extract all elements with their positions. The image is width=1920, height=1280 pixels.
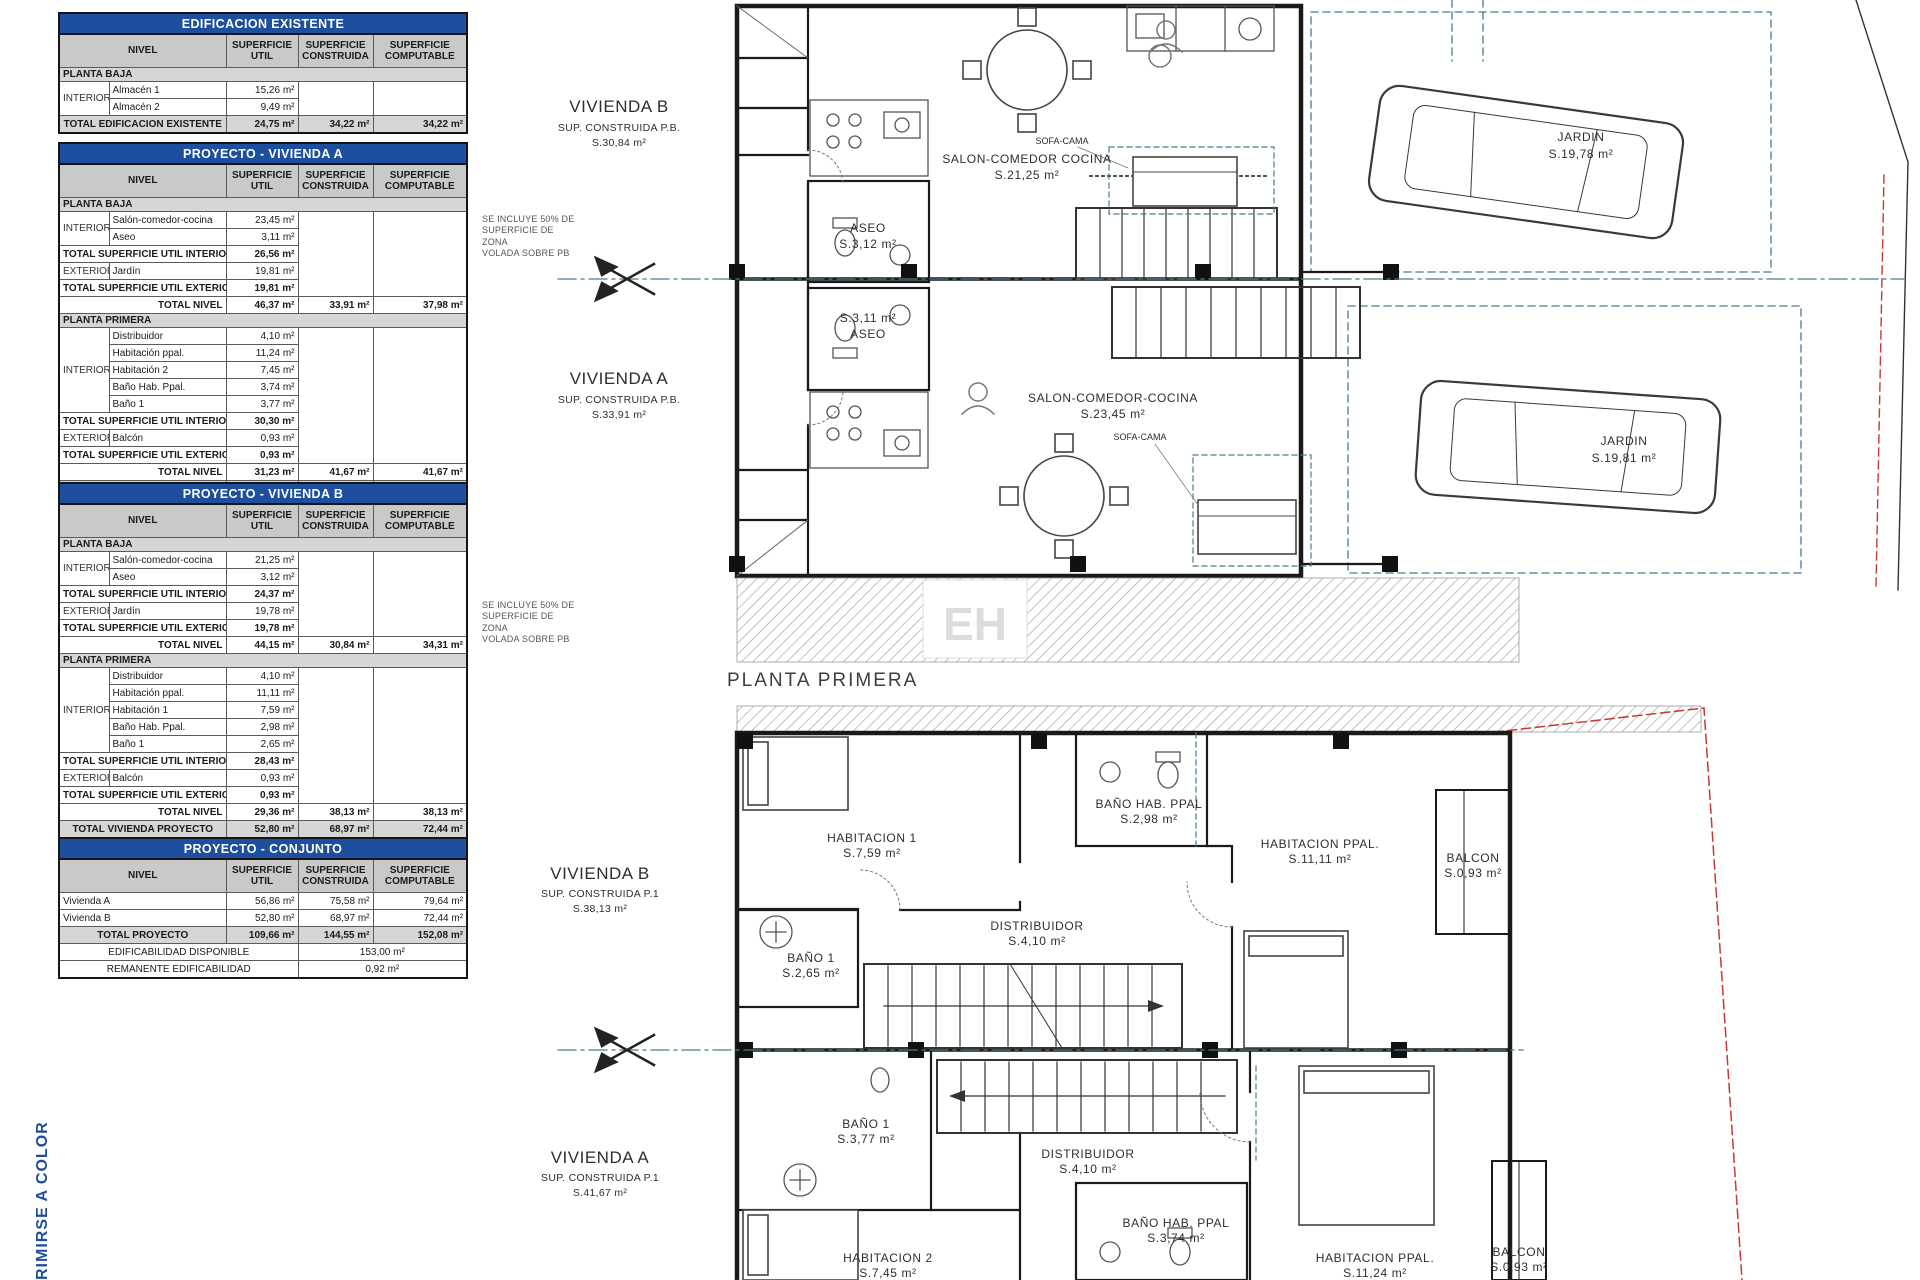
room-area-distribuidor-b: S.4,10 m² (1008, 934, 1065, 948)
jardin-a-area: S.19,81 m² (1592, 451, 1657, 465)
room-label-distribuidor-b: DISTRIBUIDOR (990, 919, 1083, 933)
table-row: TOTAL EDIFICACION EXISTENTE 24,75 m² 34,… (59, 116, 467, 134)
room-area-balcon-a: S.0,93 m² (1490, 1260, 1547, 1274)
room-area-habppal-b: S.11,11 m² (1289, 852, 1352, 866)
table-proyecto-vivienda-b: PROYECTO - VIVIENDA B NIVEL SUPERFICIE U… (58, 482, 468, 839)
site-boundary-lines (1856, 0, 1908, 590)
table-row: INTERIOR Distribuidor 4,10 m² (59, 328, 467, 345)
room-area-distribuidor-a: S.4,10 m² (1059, 1162, 1116, 1176)
room-label-salon-a: SALON-COMEDOR-COCINA (1028, 391, 1198, 405)
vivienda-a-title: VIVIENDA A (570, 369, 669, 388)
room-label-habppal-b: HABITACION PPAL. (1261, 837, 1380, 851)
room-label-bano-hp-a: BAÑO HAB. PPAL (1123, 1216, 1230, 1230)
room-area-bano1-a: S.3,77 m² (837, 1132, 894, 1146)
table-row: EDIFICACION EXISTENTE (59, 13, 467, 34)
room-area-habitacion1: S.7,59 m² (843, 846, 900, 860)
bed-icon (1299, 1066, 1434, 1225)
table-row: Vivienda B 52,80 m² 68,97 m² 72,44 m² (59, 910, 467, 927)
ff-hatch-strip (737, 706, 1701, 732)
room-label-aseo-a: ASEO (850, 327, 886, 341)
room-label-salon-b: SALON-COMEDOR COCINA (942, 152, 1111, 166)
first-floor-plan (558, 706, 1742, 1280)
column-header: SUPERFICIE COMPUTABLE (373, 34, 467, 68)
sofa-bed-icon (1133, 157, 1237, 206)
room-label-distribuidor-a: DISTRIBUIDOR (1041, 1147, 1134, 1161)
sofa-bed-icon (1198, 500, 1296, 554)
table-row: TOTAL NIVEL 44,15 m² 30,84 m² 34,31 m² (59, 637, 467, 654)
table-row: TOTAL NIVEL 31,23 m² 41,67 m² 41,67 m² (59, 464, 467, 481)
table-row: NIVEL SUPERFICIE UTIL SUPERFICIE CONSTRU… (59, 164, 467, 198)
ground-floor-plan: EH (558, 0, 1908, 662)
sofa-cama-label: SOFA-CAMA (1113, 432, 1166, 442)
room-area-aseo-a: S.3,11 m² (840, 311, 897, 325)
room-area-habitacion2: S.7,45 m² (859, 1266, 916, 1280)
table-title: EDIFICACION EXISTENTE (59, 13, 467, 34)
room-label-habitacion1: HABITACION 1 (827, 831, 917, 845)
vivienda-a-area: S.41,67 m² (573, 1187, 628, 1199)
red-boundary-line (1876, 175, 1884, 588)
room-label-bano1-a: BAÑO 1 (842, 1117, 890, 1131)
table-row: INTERIOR Distribuidor 4,10 m² (59, 668, 467, 685)
watermark-text: EH (943, 598, 1007, 650)
room-area-aseo-b: S.3,12 m² (839, 237, 896, 251)
jardin-b-label: JARDIN (1558, 130, 1605, 144)
table-row: TOTAL NIVEL 29,36 m² 38,13 m² 38,13 m² (59, 804, 467, 821)
zona-volada-note: SE INCLUYE 50% DE SUPERFICIE DE ZONA VOL… (482, 214, 582, 259)
vivienda-a-subtitle: SUP. CONSTRUIDA P.1 (541, 1172, 659, 1184)
vivienda-a-area: S.33,91 m² (592, 409, 647, 421)
table-row: PROYECTO - CONJUNTO (59, 838, 467, 859)
table-title: PROYECTO - CONJUNTO (59, 838, 467, 859)
vivienda-b-subtitle: SUP. CONSTRUIDA P.B. (558, 122, 680, 134)
car-icon (1414, 380, 1721, 515)
vivienda-a-subtitle: SUP. CONSTRUIDA P.B. (558, 394, 680, 406)
room-label-balcon-b: BALCON (1447, 851, 1500, 865)
table-row: PLANTA PRIMERA (59, 314, 467, 328)
table-row: PLANTA BAJA (59, 198, 467, 212)
room-area-habppal-a: S.11,24 m² (1343, 1266, 1407, 1280)
column-header: SUPERFICIE UTIL (226, 34, 298, 68)
vivienda-b-title: VIVIENDA B (550, 864, 649, 883)
table-row: NIVEL SUPERFICIE UTIL SUPERFICIE CONSTRU… (59, 34, 467, 68)
table-row: NIVEL SUPERFICIE UTIL SUPERFICIE CONSTRU… (59, 859, 467, 893)
room-area-bano1-b: S.2,65 m² (782, 966, 839, 980)
room-label-aseo-b: ASEO (850, 221, 886, 235)
bed-icon (743, 1210, 858, 1280)
room-area-salon-b: S.21,25 m² (995, 168, 1060, 182)
table-row: TOTAL VIVIENDA PROYECTO 52,80 m² 68,97 m… (59, 821, 467, 839)
jardin-a-label: JARDIN (1601, 434, 1648, 448)
sofa-cama-label: SOFA-CAMA (1035, 136, 1088, 146)
room-area-salon-a: S.23,45 m² (1081, 407, 1146, 421)
table-title: PROYECTO - VIVIENDA B (59, 483, 467, 504)
ground-hatch-strip (737, 578, 1519, 662)
room-label-habitacion2: HABITACION 2 (843, 1251, 933, 1265)
bed-icon (743, 737, 848, 810)
vivienda-b-area: S.30,84 m² (592, 137, 647, 149)
column-header: SUPERFICIE CONSTRUIDA (298, 34, 373, 68)
zona-volada-note: SE INCLUYE 50% DE SUPERFICIE DE ZONA VOL… (482, 600, 582, 645)
table-proyecto-vivienda-a: PROYECTO - VIVIENDA A NIVEL SUPERFICIE U… (58, 142, 468, 499)
vivienda-b-title: VIVIENDA B (569, 97, 668, 116)
table-row: INTERIOR Almacén 1 15,26 m² (59, 82, 467, 99)
table-row: Vivienda A 56,86 m² 75,58 m² 79,64 m² (59, 893, 467, 910)
print-color-note: RIMIRSE A COLOR (34, 1120, 52, 1280)
room-label-bano-hp-b: BAÑO HAB. PPAL (1096, 797, 1203, 811)
room-label-habppal-a: HABITACION PPAL. (1316, 1251, 1435, 1265)
bed-icon (1244, 931, 1348, 1048)
table-row: TOTAL NIVEL 46,37 m² 33,91 m² 37,98 m² (59, 297, 467, 314)
table-row: EDIFICABILIDAD DISPONIBLE 153,00 m² (59, 944, 467, 961)
room-label-balcon-a: BALCON (1493, 1245, 1546, 1259)
watermark-logo: EH (923, 580, 1027, 658)
room-area-balcon-b: S.0,93 m² (1444, 866, 1501, 880)
table-row: PLANTA PRIMERA (59, 654, 467, 668)
table-row: TOTAL PROYECTO 109,66 m² 144,55 m² 152,0… (59, 927, 467, 944)
planta-primera-heading: PLANTA PRIMERA (727, 670, 918, 691)
car-icon (1366, 83, 1685, 240)
table-row: PROYECTO - VIVIENDA A (59, 143, 467, 164)
table-row: INTERIOR Salón-comedor-cocina 23,45 m² (59, 212, 467, 229)
vivienda-a-title: VIVIENDA A (551, 1148, 650, 1167)
vivienda-b-subtitle: SUP. CONSTRUIDA P.1 (541, 888, 659, 900)
room-label-bano1-b: BAÑO 1 (787, 951, 835, 965)
table-proyecto-conjunto: PROYECTO - CONJUNTO NIVEL SUPERFICIE UTI… (58, 837, 468, 979)
table-edificacion-existente: EDIFICACION EXISTENTE NIVEL SUPERFICIE U… (58, 12, 468, 134)
jardin-b-area: S.19,78 m² (1549, 147, 1614, 161)
room-area-bano-hp-a: S.3,74 m² (1147, 1231, 1204, 1245)
vivienda-b-area: S.38,13 m² (573, 903, 628, 915)
room-area-bano-hp-b: S.2,98 m² (1120, 812, 1177, 826)
table-row: PLANTA BAJA (59, 538, 467, 552)
table-row: INTERIOR Salón-comedor-cocina 21,25 m² (59, 552, 467, 569)
table-row: PLANTA BAJA (59, 68, 467, 82)
column-header: NIVEL (59, 34, 226, 68)
table-row: REMANENTE EDIFICABILIDAD 0,92 m² (59, 961, 467, 979)
table-title: PROYECTO - VIVIENDA A (59, 143, 467, 164)
table-row: NIVEL SUPERFICIE UTIL SUPERFICIE CONSTRU… (59, 504, 467, 538)
table-row: PROYECTO - VIVIENDA B (59, 483, 467, 504)
